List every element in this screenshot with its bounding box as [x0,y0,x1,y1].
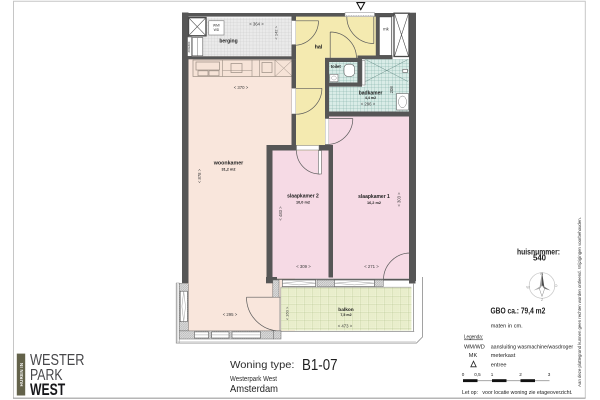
svg-text:0,5: 0,5 [474,372,481,377]
svg-text:toilet: toilet [331,64,342,69]
svg-text:< 295 >: < 295 > [223,312,238,317]
svg-text:berging: berging [219,39,237,45]
svg-text:N: N [540,271,543,276]
svg-text:0: 0 [462,372,465,377]
svg-text:Legenda:: Legenda: [464,335,483,341]
svg-text:540: 540 [533,254,547,263]
svg-text:entree: entree [491,362,507,368]
svg-text:WEST: WEST [30,380,66,399]
svg-text:WM/WD: WM/WD [464,344,485,350]
svg-text:GBO ca.: 79,4 m2: GBO ca.: 79,4 m2 [491,306,546,316]
svg-text:600x600: 600x600 [187,41,191,52]
svg-text:MK: MK [469,353,478,359]
svg-text:10,0 m2: 10,0 m2 [296,201,310,205]
svg-text:< 296 >: < 296 > [361,102,376,107]
svg-text:meterkast: meterkast [491,353,516,359]
svg-text:B1-07: B1-07 [302,357,338,374]
svg-text:woonkamer: woonkamer [213,161,243,167]
svg-text:7,5 m2: 7,5 m2 [340,313,351,317]
svg-text:Aan deze plattegrond kunnen ge: Aan deze plattegrond kunnen geen rechten… [577,217,582,387]
svg-text:< 878 >: < 878 > [197,168,202,183]
svg-text:maten in cm.: maten in cm. [491,324,523,330]
svg-text:Let op: voor locatie woning: Let op: voor locatie woning zie etageove… [462,390,573,396]
svg-text:31,2 m2: 31,2 m2 [222,168,236,172]
svg-text:slaapkamer 2: slaapkamer 2 [287,194,319,200]
svg-text:< 483 >: < 483 > [278,206,283,221]
svg-text:3: 3 [548,372,551,377]
svg-text:aansluiting wasmachine/wasdrog: aansluiting wasmachine/wasdroger [491,344,574,350]
svg-text:O: O [555,284,558,288]
svg-text:Woning type:: Woning type: [230,359,295,371]
svg-text:Z: Z [541,298,544,302]
svg-text:< 271 >: < 271 > [364,264,379,269]
svg-text:< 142 >: < 142 > [273,25,278,39]
svg-text:hal: hal [315,44,323,50]
svg-text:< 473 >: < 473 > [338,323,353,328]
svg-text:Westerpark West: Westerpark West [230,376,277,383]
svg-text:< 303 >: < 303 > [396,192,401,207]
svg-text:< 309 >: < 309 > [296,264,311,269]
svg-text:< 370 >: < 370 > [234,85,249,90]
svg-text:mk: mk [383,27,389,32]
svg-text:Amsterdam: Amsterdam [230,383,278,395]
svg-text:WD: WD [214,28,220,32]
svg-text:16,2 m2: 16,2 m2 [367,201,381,205]
svg-text:W: W [526,286,530,290]
svg-text:208: 208 [389,86,394,94]
svg-text:slaapkamer 1: slaapkamer 1 [358,194,390,200]
svg-text:4,4 m2: 4,4 m2 [365,96,376,100]
svg-text:< 160 >: < 160 > [285,306,290,320]
svg-text:1: 1 [491,372,494,377]
svg-text:< 364 >: < 364 > [249,22,264,27]
svg-text:HUREN IN: HUREN IN [19,363,24,387]
svg-text:2: 2 [519,372,522,377]
